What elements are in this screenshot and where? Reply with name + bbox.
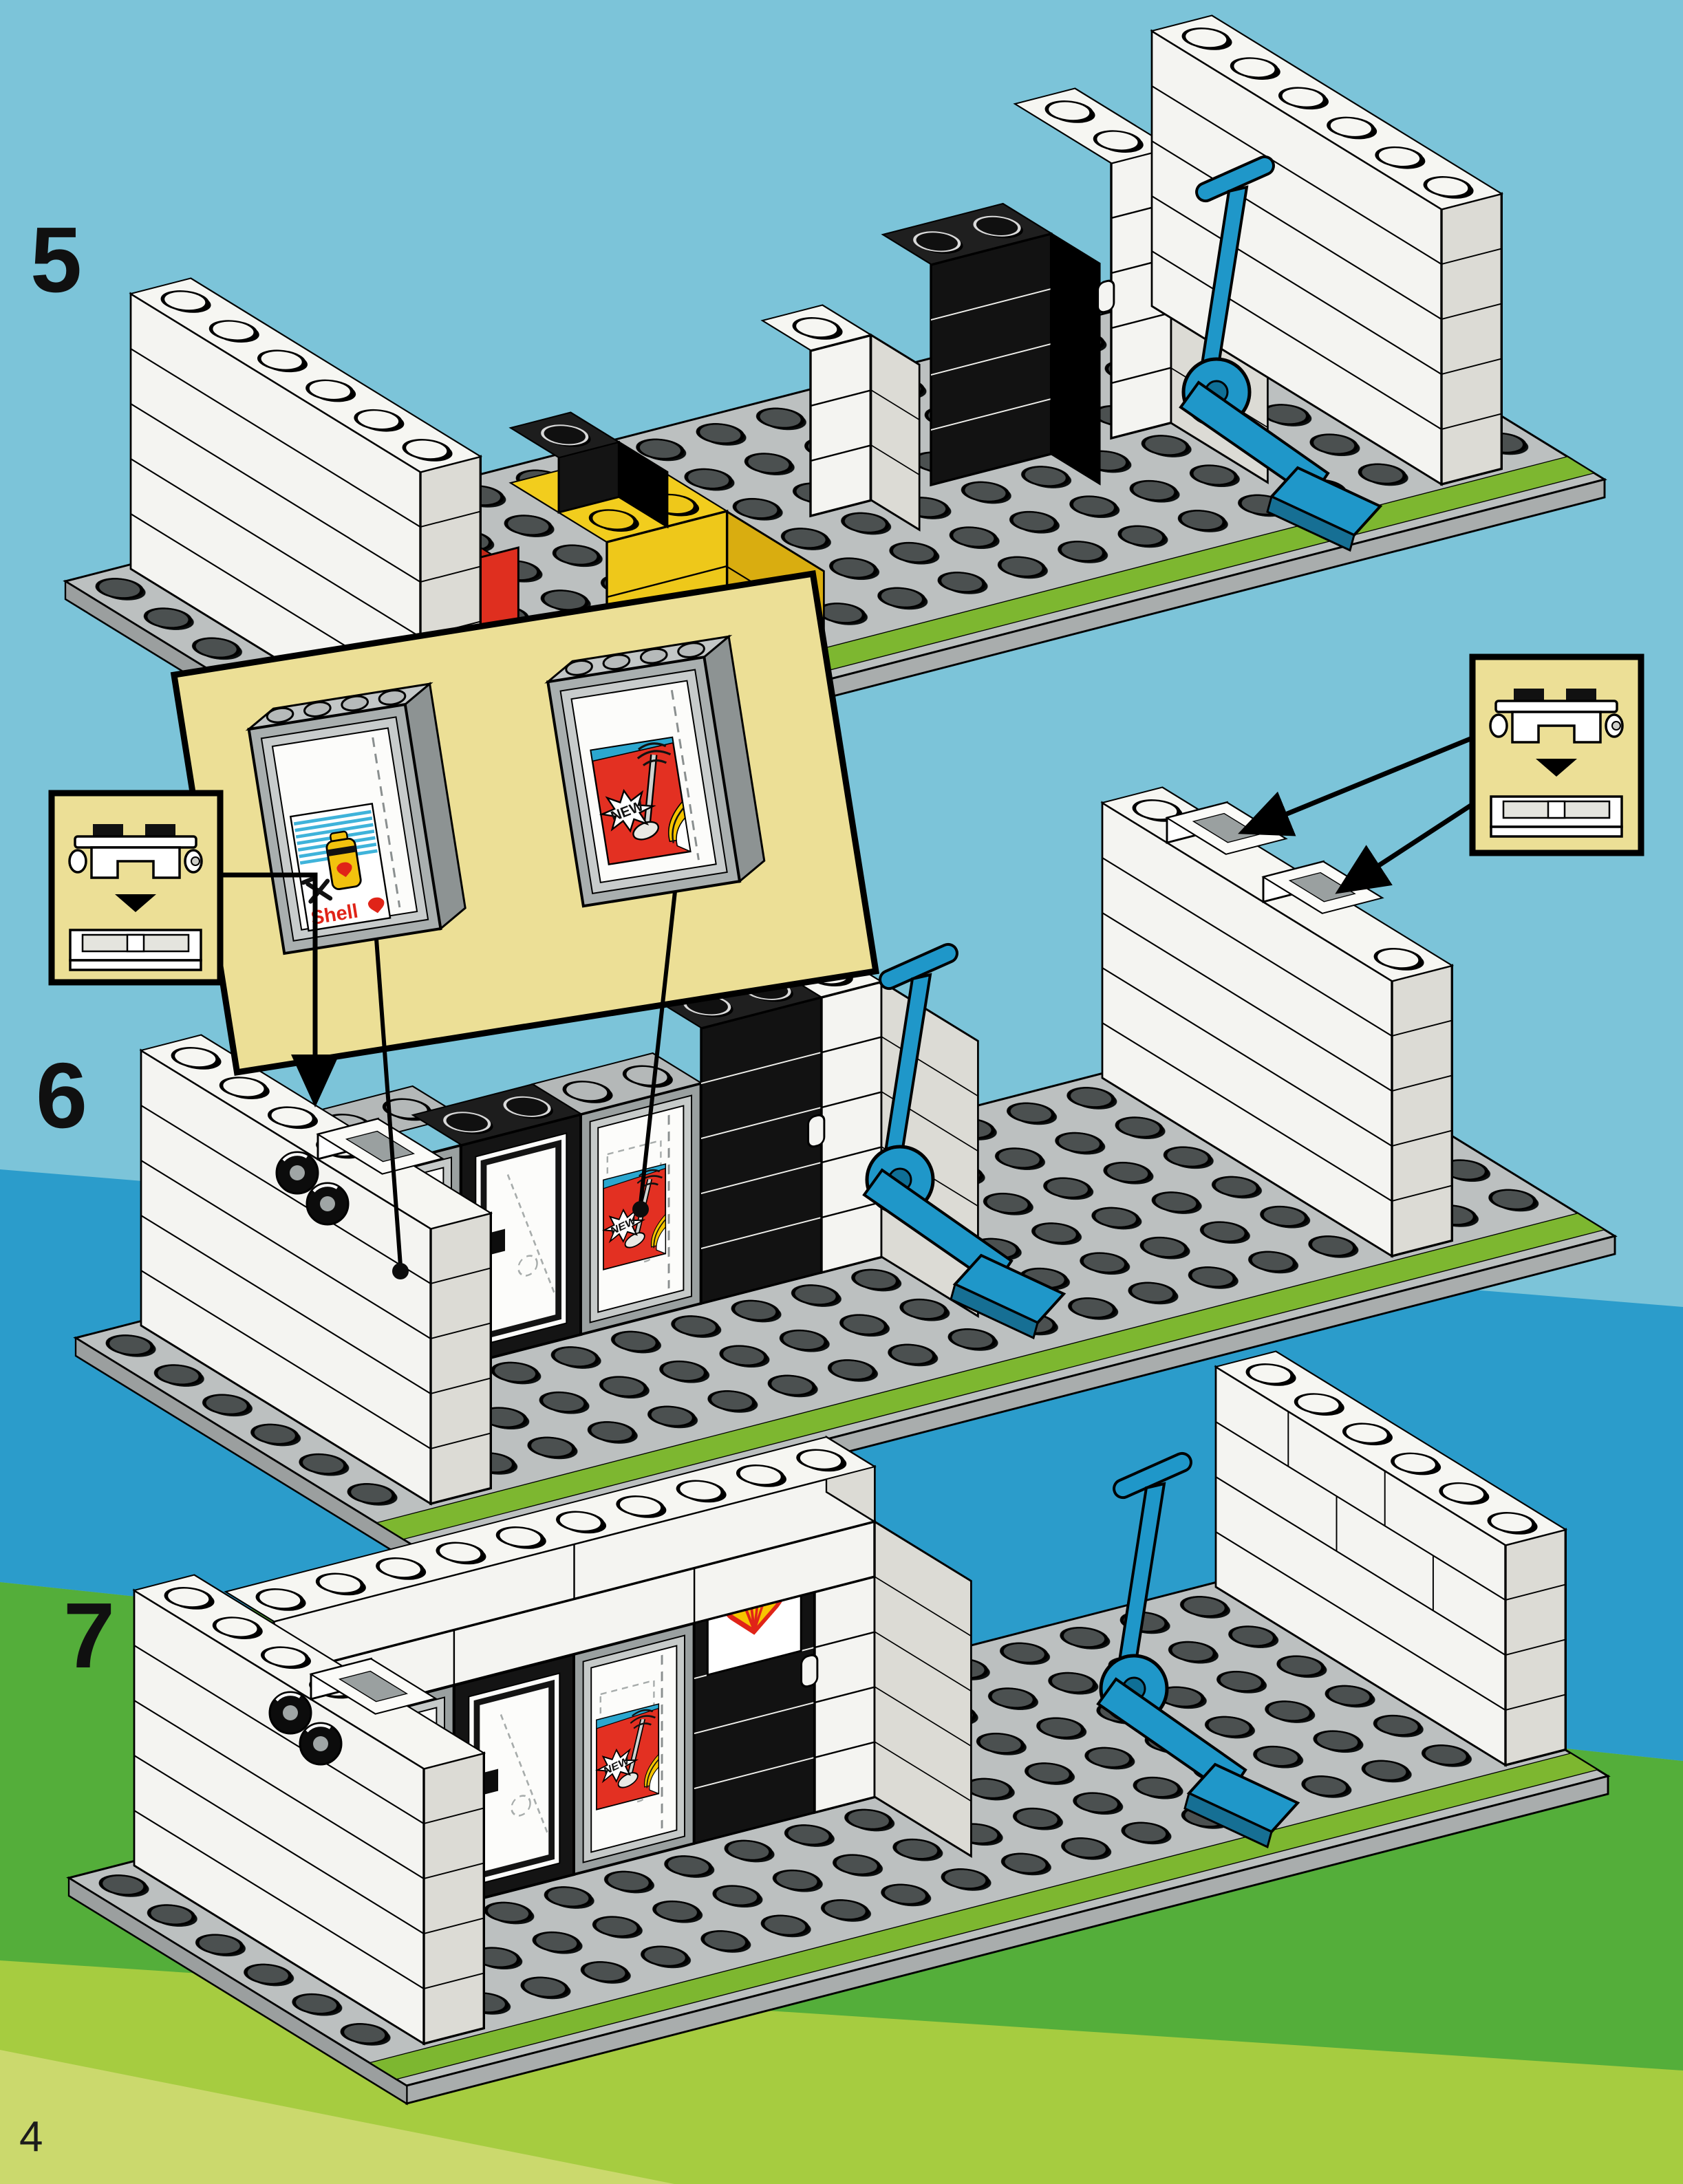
detail-window-shell	[246, 684, 468, 953]
step-7-label: 7	[63, 1589, 115, 1682]
detail-window-new	[545, 636, 767, 906]
hose-clip	[808, 1114, 824, 1148]
step-6-label: 6	[36, 1049, 87, 1142]
step-5-label: 5	[30, 213, 82, 306]
hose-clip	[802, 1654, 817, 1688]
page-number: 4	[19, 2116, 43, 2159]
leader-dot	[632, 1201, 649, 1218]
leader-dot	[392, 1263, 409, 1279]
shop-window-new	[574, 1623, 694, 1874]
hose-clip	[1098, 279, 1114, 314]
instruction-page: Shell NEW	[0, 0, 1683, 2184]
